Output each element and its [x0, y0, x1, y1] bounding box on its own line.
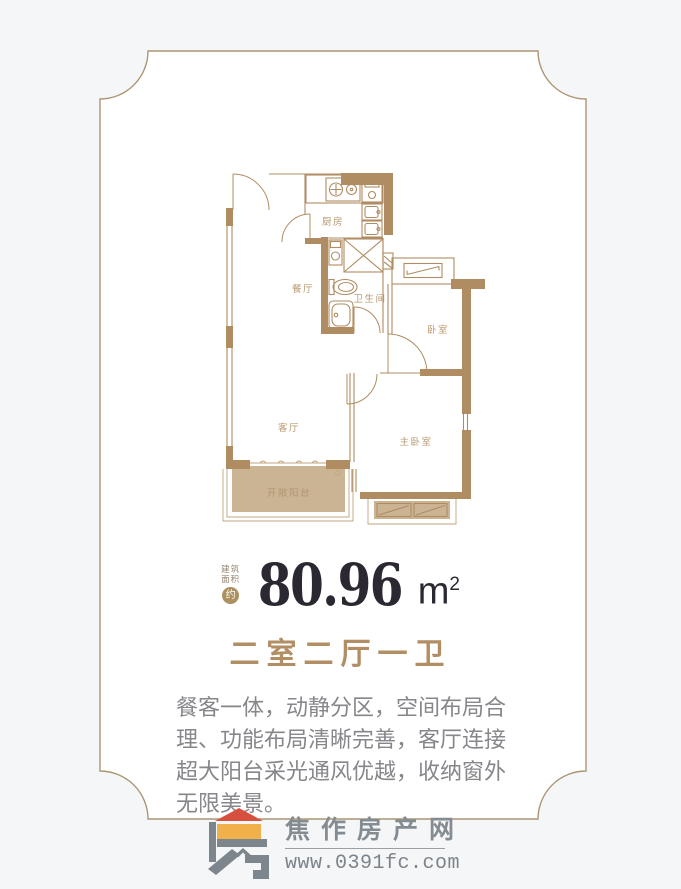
room-label-living: 客厅 [278, 422, 300, 434]
bathroom-door-icon [354, 307, 380, 333]
kitchen-sink-icon [362, 204, 382, 237]
toilet-icon [329, 280, 357, 295]
room-label-bedroom: 卧室 [427, 324, 449, 336]
site-logo-icon [204, 806, 274, 880]
logo-gold-bar [217, 824, 261, 839]
master-bedroom-door-icon [347, 374, 377, 404]
washer-icon [329, 240, 342, 265]
description-line: 理、功能布局清晰完善，客厅连接 [176, 724, 506, 756]
description-line: 餐客一体，动静分区，空间布局合 [176, 692, 506, 724]
bathtub-icon [329, 301, 353, 329]
screenshot-root: 厨房 餐厅 卫生间 卧室 客厅 主卧室 开敞阳台 建筑 面积 约 80.96 m… [0, 0, 681, 889]
description: 餐客一体，动静分区，空间布局合 理、功能布局清晰完善，客厅连接 超大阳台采光通风… [176, 692, 506, 820]
approx-badge: 约 [222, 587, 239, 604]
room-label-dining: 餐厅 [292, 283, 314, 295]
walls-layer [226, 173, 485, 499]
floor-plan: 厨房 餐厅 卫生间 卧室 客厅 主卧室 开敞阳台 [210, 160, 495, 540]
area-prefix-line2: 面积 [221, 575, 240, 585]
area-unit-letter: m [418, 571, 450, 613]
description-line: 超大阳台采光通风优越，收纳窗外 [176, 756, 506, 788]
area-unit: m2 [418, 566, 460, 611]
room-label-balcony: 开敞阳台 [267, 487, 311, 499]
built-area-row: 建筑 面积 约 80.96 m2 [0, 556, 681, 614]
room-label-master-bedroom: 主卧室 [399, 436, 432, 448]
room-label-bathroom: 卫生间 [353, 293, 386, 305]
kitchen-door-icon [282, 214, 310, 242]
room-label-kitchen: 厨房 [322, 216, 344, 228]
bedroom-door-icon [388, 334, 427, 373]
site-name: 焦作房产网 [285, 818, 465, 844]
area-unit-exponent: 2 [449, 574, 460, 595]
logo-roof-icon [215, 808, 263, 821]
site-footer: 焦作房产网 www.0391fc.com [285, 818, 465, 875]
layout-title: 二室二厅一卫 [0, 629, 681, 673]
entry-door-icon [233, 174, 269, 210]
shower-icon [344, 239, 383, 272]
doors-layer [233, 174, 427, 404]
area-value: 80.96 [258, 556, 402, 614]
area-prefix: 建筑 面积 约 [221, 565, 240, 604]
footer-divider [285, 848, 445, 849]
bedroom-bay-window-icon [392, 258, 454, 284]
site-url: www.0391fc.com [285, 852, 465, 875]
